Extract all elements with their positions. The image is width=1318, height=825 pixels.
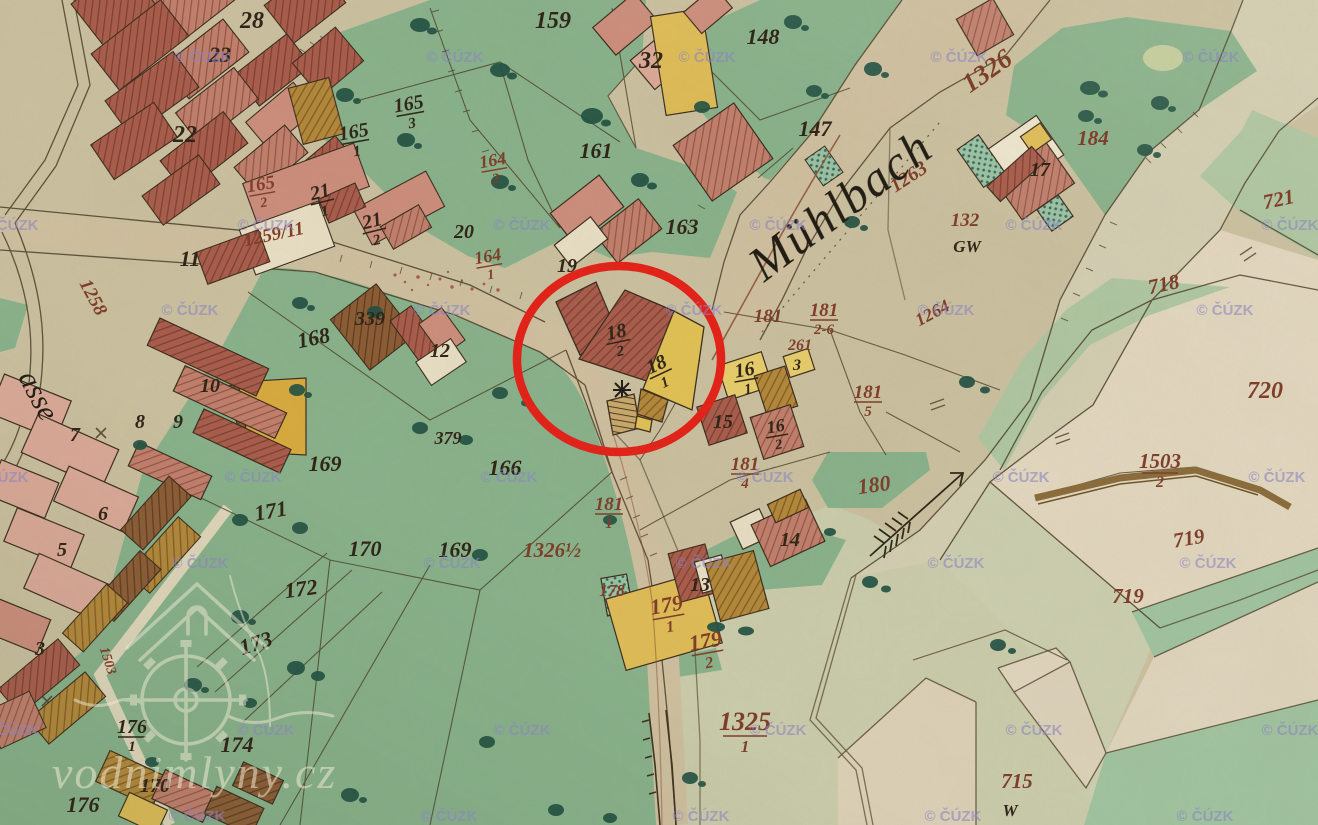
svg-text:© ČÚZK: © ČÚZK [925,807,982,825]
svg-text:© ČÚZK: © ČÚZK [494,721,551,739]
svg-text:© ČÚZK: © ČÚZK [238,721,295,739]
svg-text:© ČÚZK: © ČÚZK [1006,721,1063,739]
svg-text:© ČÚZK: © ČÚZK [1197,301,1254,319]
svg-text:© ČÚZK: © ČÚZK [494,216,551,234]
svg-text:© ČÚZK: © ČÚZK [1180,554,1237,572]
svg-text:© ČÚZK: © ČÚZK [1006,216,1063,234]
svg-text:© ČÚZK: © ČÚZK [0,468,29,486]
svg-text:© ČÚZK: © ČÚZK [172,554,229,572]
svg-text:© ČÚZK: © ČÚZK [750,721,807,739]
svg-text:© ČÚZK: © ČÚZK [238,216,295,234]
svg-text:© ČÚZK: © ČÚZK [1262,216,1318,234]
svg-text:© ČÚZK: © ČÚZK [414,301,471,319]
svg-text:© ČÚZK: © ČÚZK [421,807,478,825]
svg-text:© ČÚZK: © ČÚZK [175,48,232,66]
svg-text:© ČÚZK: © ČÚZK [481,468,538,486]
svg-text:© ČÚZK: © ČÚZK [931,48,988,66]
svg-text:© ČÚZK: © ČÚZK [1249,468,1306,486]
svg-text:© ČÚZK: © ČÚZK [666,301,723,319]
svg-text:© ČÚZK: © ČÚZK [918,301,975,319]
svg-text:© ČÚZK: © ČÚZK [673,807,730,825]
svg-text:© ČÚZK: © ČÚZK [225,468,282,486]
svg-text:© ČÚZK: © ČÚZK [1262,721,1318,739]
svg-text:© ČÚZK: © ČÚZK [427,48,484,66]
svg-text:© ČÚZK: © ČÚZK [424,554,481,572]
svg-text:© ČÚZK: © ČÚZK [1177,807,1234,825]
svg-text:© ČÚZK: © ČÚZK [0,721,39,739]
svg-text:© ČÚZK: © ČÚZK [676,554,733,572]
svg-text:© ČÚZK: © ČÚZK [928,554,985,572]
svg-text:© ČÚZK: © ČÚZK [993,468,1050,486]
svg-text:© ČÚZK: © ČÚZK [169,807,226,825]
svg-text:© ČÚZK: © ČÚZK [162,301,219,319]
svg-text:© ČÚZK: © ČÚZK [737,468,794,486]
svg-text:vodnimlyny.cz: vodnimlyny.cz [52,747,337,798]
svg-text:© ČÚZK: © ČÚZK [0,216,39,234]
svg-text:© ČÚZK: © ČÚZK [750,216,807,234]
svg-text:© ČÚZK: © ČÚZK [679,48,736,66]
svg-text:© ČÚZK: © ČÚZK [1183,48,1240,66]
